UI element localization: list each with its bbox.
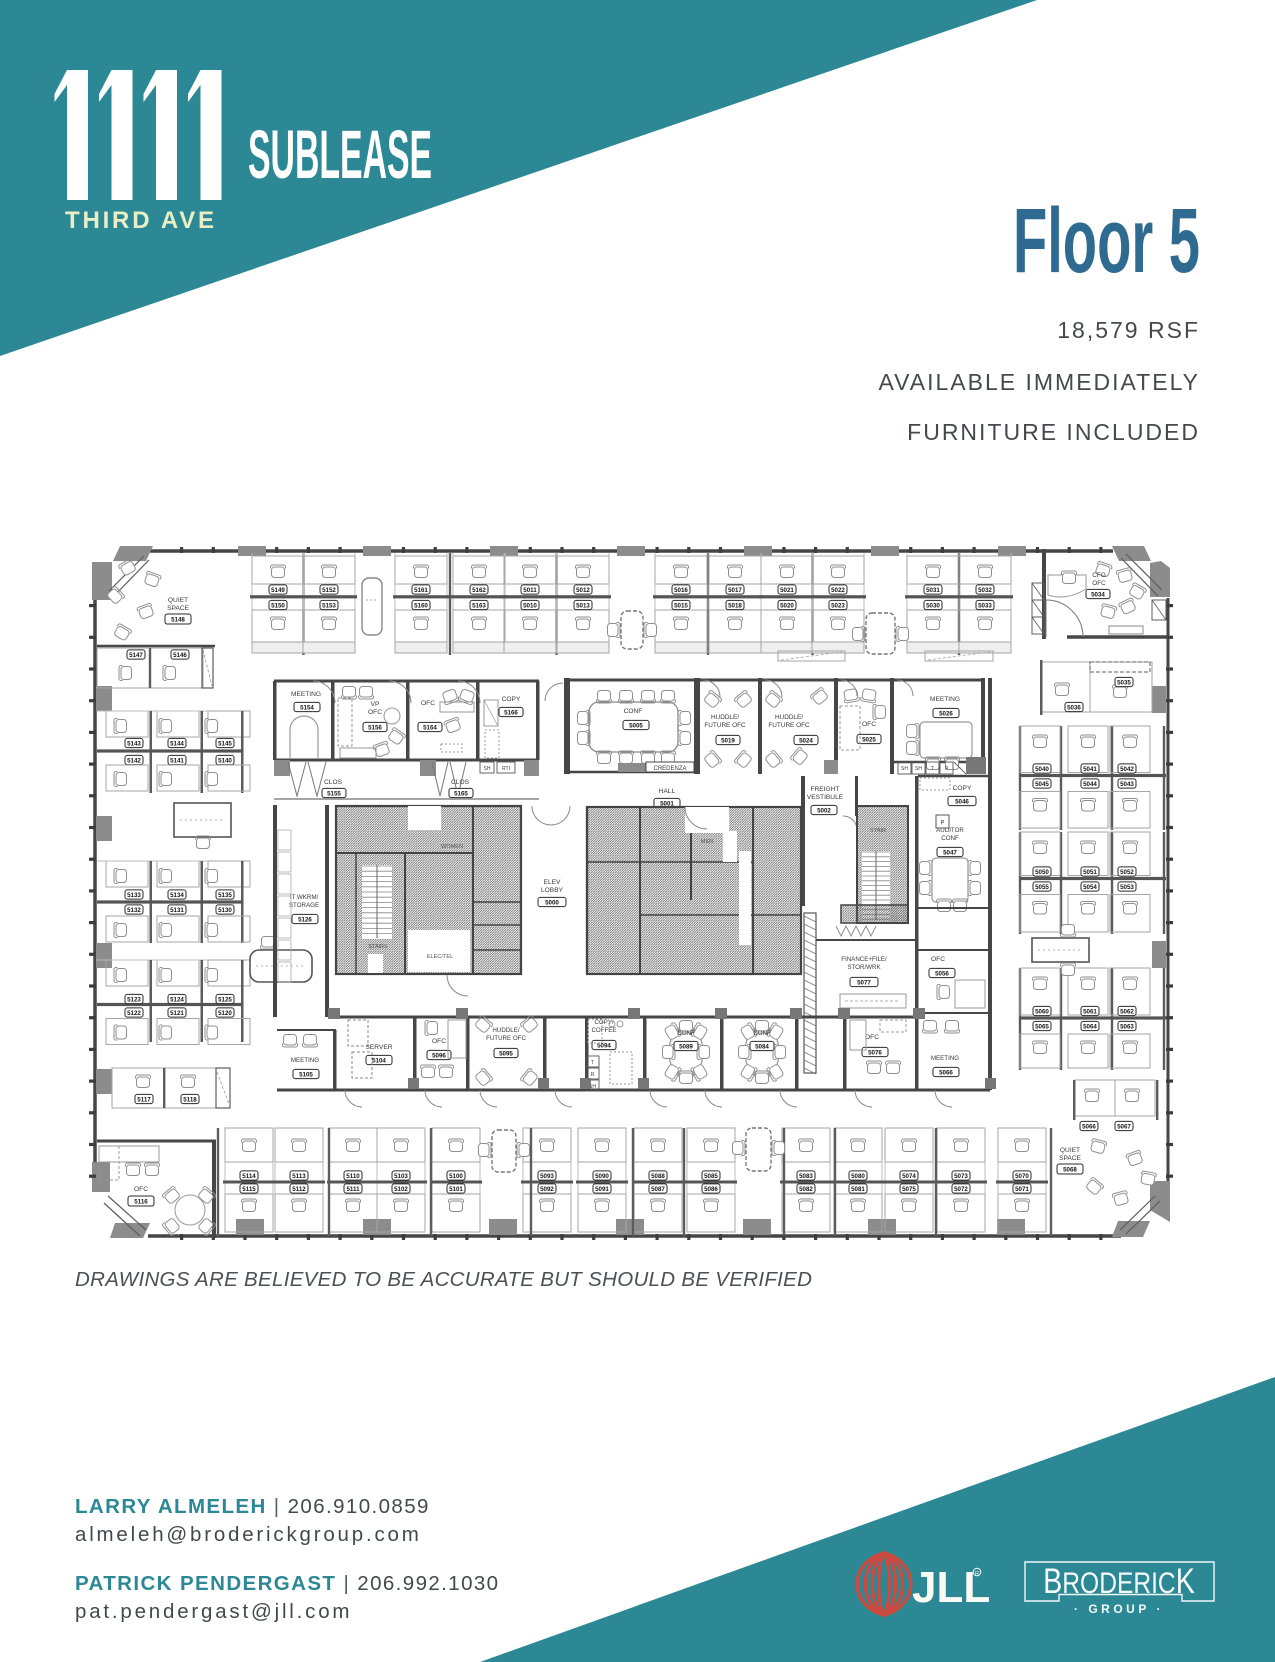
svg-text:5036: 5036 — [1067, 704, 1081, 711]
svg-text:AVAILABLE IMMEDIATELY: AVAILABLE IMMEDIATELY — [879, 369, 1201, 395]
svg-text:5052: 5052 — [1120, 869, 1134, 876]
svg-text:OFC: OFC — [432, 1038, 446, 1045]
svg-text:5051: 5051 — [1083, 869, 1097, 876]
svg-text:5117: 5117 — [137, 1096, 151, 1103]
svg-text:5149: 5149 — [271, 587, 285, 594]
svg-text:5144: 5144 — [170, 740, 184, 747]
svg-text:5123: 5123 — [127, 996, 141, 1003]
svg-text:5062: 5062 — [1120, 1008, 1134, 1015]
svg-text:5100: 5100 — [449, 1173, 463, 1180]
svg-text:COPY: COPY — [502, 696, 521, 703]
svg-text:5016: 5016 — [674, 587, 688, 594]
svg-text:CONF: CONF — [753, 1030, 771, 1037]
svg-text:5032: 5032 — [978, 587, 992, 594]
svg-text:SH: SH — [484, 766, 491, 772]
svg-text:5152: 5152 — [322, 587, 336, 594]
svg-text:5024: 5024 — [799, 737, 813, 744]
svg-text:5068: 5068 — [1063, 1166, 1077, 1173]
svg-text:5015: 5015 — [674, 602, 688, 609]
svg-text:5111: 5111 — [346, 1186, 360, 1193]
svg-text:CONF: CONF — [941, 835, 959, 842]
svg-text:5096: 5096 — [432, 1052, 446, 1059]
svg-text:IT WKRM/: IT WKRM/ — [290, 894, 319, 901]
svg-text:5066: 5066 — [939, 1069, 953, 1076]
svg-text:5033: 5033 — [978, 602, 992, 609]
svg-text:OFC: OFC — [134, 1186, 148, 1193]
svg-text:T: T — [591, 1060, 594, 1066]
svg-text:STOR/WRK: STOR/WRK — [847, 964, 881, 971]
svg-text:HUDDLE/: HUDDLE/ — [775, 714, 803, 721]
svg-text:5045: 5045 — [1035, 781, 1049, 788]
svg-text:OFC: OFC — [421, 700, 435, 707]
svg-text:5064: 5064 — [1083, 1023, 1097, 1030]
svg-text:5125: 5125 — [218, 996, 232, 1003]
svg-text:R: R — [975, 1571, 979, 1577]
svg-text:5092: 5092 — [540, 1186, 554, 1193]
svg-text:5026: 5026 — [939, 710, 953, 717]
svg-text:5160: 5160 — [414, 602, 428, 609]
svg-text:5021: 5021 — [780, 587, 794, 594]
svg-text:CONF: CONF — [677, 1030, 695, 1037]
svg-text:5113: 5113 — [292, 1173, 306, 1180]
svg-text:5072: 5072 — [954, 1186, 968, 1193]
svg-text:5150: 5150 — [271, 602, 285, 609]
svg-text:5143: 5143 — [127, 740, 141, 747]
svg-text:5018: 5018 — [728, 602, 742, 609]
svg-text:5162: 5162 — [472, 587, 486, 594]
svg-text:MEN: MEN — [701, 839, 713, 845]
svg-text:5118: 5118 — [183, 1096, 197, 1103]
svg-text:5035: 5035 — [1117, 679, 1131, 686]
svg-text:5093: 5093 — [540, 1173, 554, 1180]
svg-text:5164: 5164 — [423, 724, 437, 731]
svg-text:5031: 5031 — [926, 587, 940, 594]
svg-text:5013: 5013 — [576, 602, 590, 609]
svg-text:5122: 5122 — [127, 1010, 141, 1017]
svg-text:5066: 5066 — [1082, 1123, 1096, 1130]
svg-text:5090: 5090 — [595, 1173, 609, 1180]
svg-text:5131: 5131 — [170, 907, 184, 914]
svg-text:5074: 5074 — [902, 1173, 916, 1180]
svg-text:5042: 5042 — [1120, 766, 1134, 773]
svg-text:5041: 5041 — [1083, 766, 1097, 773]
svg-text:SUBLEASE: SUBLEASE — [248, 116, 432, 193]
svg-text:5065: 5065 — [1035, 1023, 1049, 1030]
svg-text:5040: 5040 — [1035, 766, 1049, 773]
svg-text:5005: 5005 — [629, 722, 643, 729]
svg-text:5133: 5133 — [127, 892, 141, 899]
svg-text:5104: 5104 — [372, 1057, 386, 1064]
svg-text:COPY: COPY — [953, 785, 972, 792]
svg-text:5075: 5075 — [902, 1186, 916, 1193]
svg-text:HUDDLE/: HUDDLE/ — [492, 1027, 519, 1034]
svg-text:5086: 5086 — [704, 1186, 718, 1193]
svg-text:18,579 RSF: 18,579 RSF — [1057, 317, 1200, 343]
svg-text:5010: 5010 — [523, 602, 537, 609]
svg-text:5140: 5140 — [218, 757, 232, 764]
svg-text:5095: 5095 — [499, 1050, 513, 1057]
svg-text:5044: 5044 — [1083, 781, 1097, 788]
svg-text:5073: 5073 — [954, 1173, 968, 1180]
svg-text:5023: 5023 — [831, 602, 845, 609]
svg-text:WOMEN: WOMEN — [441, 844, 463, 850]
svg-text:5105: 5105 — [299, 1071, 313, 1078]
svg-text:5147: 5147 — [129, 652, 143, 659]
svg-text:5145: 5145 — [218, 740, 232, 747]
svg-text:5156: 5156 — [368, 724, 382, 731]
svg-text:almeleh@broderickgroup.com: almeleh@broderickgroup.com — [75, 1523, 422, 1546]
svg-text:MEETING: MEETING — [930, 696, 960, 703]
svg-text:LARRY ALMELEH | 206.910.0859: LARRY ALMELEH | 206.910.0859 — [75, 1495, 430, 1518]
svg-text:· GROUP ·: · GROUP · — [1074, 1602, 1164, 1616]
svg-text:OFC: OFC — [1092, 580, 1106, 587]
svg-text:5101: 5101 — [449, 1186, 463, 1193]
svg-text:COFFEE: COFFEE — [591, 1027, 616, 1034]
svg-text:5060: 5060 — [1035, 1008, 1049, 1015]
svg-text:STAIRS: STAIRS — [368, 944, 387, 950]
svg-text:5148: 5148 — [171, 616, 185, 623]
svg-text:5124: 5124 — [170, 996, 184, 1003]
svg-text:5088: 5088 — [651, 1173, 665, 1180]
svg-text:FINANCE+FILE/: FINANCE+FILE/ — [841, 956, 887, 963]
svg-text:ELEC/TEL: ELEC/TEL — [427, 954, 453, 960]
svg-text:R: R — [591, 1072, 595, 1078]
svg-text:CLOS: CLOS — [451, 779, 470, 786]
svg-text:5166: 5166 — [504, 709, 518, 716]
svg-text:5116: 5116 — [134, 1198, 148, 1205]
svg-text:5155: 5155 — [327, 790, 341, 797]
svg-text:FUTURE OFC: FUTURE OFC — [486, 1035, 526, 1042]
svg-text:5046: 5046 — [955, 798, 969, 805]
svg-text:5085: 5085 — [704, 1173, 718, 1180]
svg-text:5055: 5055 — [1035, 884, 1049, 891]
svg-text:5091: 5091 — [595, 1186, 609, 1193]
svg-text:MEETING: MEETING — [291, 691, 321, 698]
svg-text:5012: 5012 — [576, 587, 590, 594]
svg-text:5030: 5030 — [926, 602, 940, 609]
svg-text:5011: 5011 — [523, 587, 537, 594]
svg-text:HALL: HALL — [659, 788, 676, 795]
svg-text:OFC: OFC — [368, 709, 382, 716]
svg-text:BRODERICK: BRODERICK — [1043, 1561, 1195, 1600]
svg-text:5134: 5134 — [170, 892, 184, 899]
svg-text:RTI: RTI — [502, 766, 510, 772]
svg-text:5050: 5050 — [1035, 869, 1049, 876]
svg-text:QUIET: QUIET — [1060, 1147, 1080, 1154]
svg-text:5000: 5000 — [545, 899, 559, 906]
svg-text:R: R — [945, 766, 949, 772]
svg-text:5153: 5153 — [322, 602, 336, 609]
svg-text:5076: 5076 — [868, 1049, 882, 1056]
svg-text:SPACE: SPACE — [167, 605, 189, 612]
svg-text:5115: 5115 — [242, 1186, 256, 1193]
svg-text:SH: SH — [901, 766, 908, 772]
svg-text:ELEV: ELEV — [544, 879, 561, 886]
svg-text:5071: 5071 — [1015, 1186, 1029, 1193]
svg-text:P: P — [940, 821, 944, 827]
svg-text:FUTURE OFC: FUTURE OFC — [704, 722, 746, 729]
svg-text:5034: 5034 — [1091, 591, 1105, 598]
svg-text:DRAWINGS ARE BELIEVED TO BE AC: DRAWINGS ARE BELIEVED TO BE ACCURATE BUT… — [75, 1268, 812, 1291]
svg-text:MEETING: MEETING — [931, 1055, 959, 1062]
svg-text:5141: 5141 — [170, 757, 184, 764]
svg-text:COPY/: COPY/ — [594, 1019, 614, 1026]
svg-text:5126: 5126 — [298, 916, 312, 923]
svg-text:5056: 5056 — [935, 970, 949, 977]
svg-text:5070: 5070 — [1015, 1173, 1029, 1180]
svg-text:FUTURE OFC: FUTURE OFC — [768, 722, 810, 729]
svg-text:5083: 5083 — [799, 1173, 813, 1180]
svg-text:CREDENZA: CREDENZA — [653, 766, 686, 772]
svg-text:OFC: OFC — [862, 721, 876, 728]
svg-text:5102: 5102 — [394, 1186, 408, 1193]
svg-text:5025: 5025 — [862, 736, 876, 743]
svg-text:5002: 5002 — [817, 807, 831, 814]
svg-text:5114: 5114 — [242, 1173, 256, 1180]
svg-text:5061: 5061 — [1083, 1008, 1097, 1015]
svg-text:5047: 5047 — [943, 849, 957, 856]
svg-text:5087: 5087 — [651, 1186, 665, 1193]
svg-text:5067: 5067 — [1117, 1123, 1131, 1130]
svg-text:LOBBY: LOBBY — [541, 887, 564, 894]
svg-text:5154: 5154 — [300, 704, 314, 711]
svg-text:5081: 5081 — [851, 1186, 865, 1193]
svg-text:5054: 5054 — [1083, 884, 1097, 891]
svg-text:THIRD AVE: THIRD AVE — [65, 207, 217, 234]
svg-text:T: T — [931, 766, 934, 772]
svg-text:5120: 5120 — [218, 1010, 232, 1017]
svg-text:5112: 5112 — [292, 1186, 306, 1193]
svg-text:CFO: CFO — [1092, 572, 1106, 579]
svg-text:5121: 5121 — [170, 1010, 184, 1017]
svg-text:5053: 5053 — [1120, 884, 1134, 891]
svg-text:5110: 5110 — [346, 1173, 360, 1180]
svg-text:5089: 5089 — [679, 1043, 693, 1050]
svg-text:5161: 5161 — [414, 587, 428, 594]
svg-text:Floor 5: Floor 5 — [1013, 190, 1200, 293]
svg-text:5022: 5022 — [831, 587, 845, 594]
svg-text:5043: 5043 — [1120, 781, 1134, 788]
svg-text:5135: 5135 — [218, 892, 232, 899]
svg-text:SPACE: SPACE — [1059, 1155, 1081, 1162]
svg-text:5132: 5132 — [127, 907, 141, 914]
svg-text:SH: SH — [915, 766, 922, 772]
svg-text:STAIR: STAIR — [870, 828, 886, 834]
svg-text:5019: 5019 — [721, 737, 735, 744]
svg-text:5063: 5063 — [1120, 1023, 1134, 1030]
svg-text:FREIGHT: FREIGHT — [811, 786, 840, 793]
svg-text:5080: 5080 — [851, 1173, 865, 1180]
svg-text:PATRICK PENDERGAST | 206.992.1: PATRICK PENDERGAST | 206.992.1030 — [75, 1572, 499, 1595]
svg-text:STORAGE: STORAGE — [289, 902, 319, 909]
svg-text:FURNITURE INCLUDED: FURNITURE INCLUDED — [907, 419, 1200, 445]
svg-text:5165: 5165 — [454, 790, 468, 797]
svg-text:SERVER: SERVER — [366, 1044, 393, 1051]
svg-text:5146: 5146 — [173, 652, 187, 659]
svg-text:CLOS: CLOS — [324, 779, 343, 786]
svg-text:5163: 5163 — [472, 602, 486, 609]
svg-text:MEETING: MEETING — [291, 1057, 319, 1064]
svg-text:CONF: CONF — [624, 708, 643, 715]
svg-text:5082: 5082 — [799, 1186, 813, 1193]
svg-text:QUIET: QUIET — [168, 597, 188, 604]
svg-text:5084: 5084 — [755, 1043, 769, 1050]
svg-text:5130: 5130 — [218, 907, 232, 914]
svg-text:OFC: OFC — [865, 1034, 879, 1041]
svg-text:5077: 5077 — [857, 979, 871, 986]
svg-text:VP: VP — [371, 701, 380, 708]
svg-text:VESTIBULE: VESTIBULE — [807, 794, 844, 801]
svg-text:pat.pendergast@jll.com: pat.pendergast@jll.com — [75, 1600, 352, 1623]
svg-text:5020: 5020 — [780, 602, 794, 609]
svg-text:5142: 5142 — [127, 757, 141, 764]
svg-text:5017: 5017 — [728, 587, 742, 594]
svg-text:5103: 5103 — [394, 1173, 408, 1180]
svg-text:OFC: OFC — [931, 956, 945, 963]
svg-text:HUDDLE/: HUDDLE/ — [711, 714, 739, 721]
